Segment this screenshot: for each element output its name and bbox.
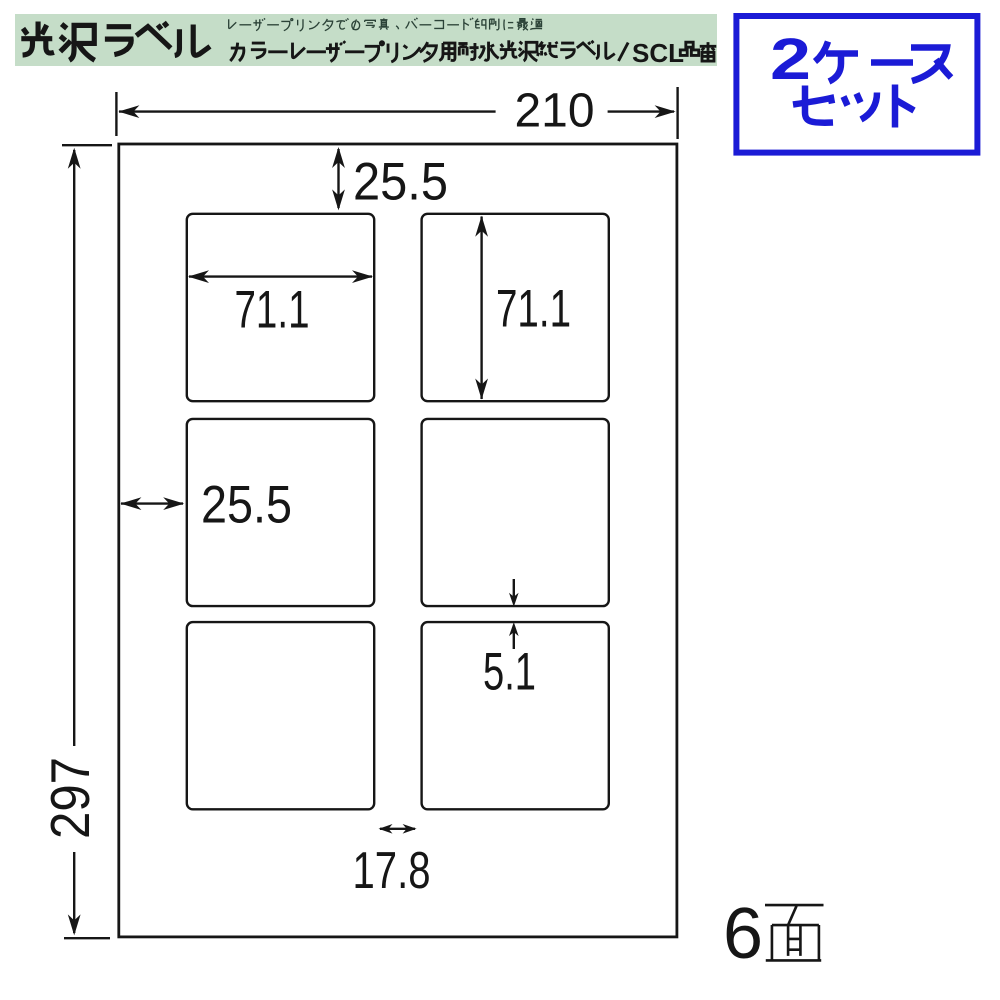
svg-text:17.8: 17.8 [353,842,431,900]
svg-text:6: 6 [723,894,763,974]
svg-text:71.1: 71.1 [496,280,571,339]
svg-text:210: 210 [515,85,595,138]
svg-text:25.5: 25.5 [201,476,292,535]
svg-text:2: 2 [770,27,811,92]
svg-text:297: 297 [39,757,101,839]
svg-text:25.5: 25.5 [353,153,448,212]
svg-text:5.1: 5.1 [483,643,536,702]
svg-text:SCL: SCL [632,38,684,68]
svg-text:71.1: 71.1 [235,281,310,340]
